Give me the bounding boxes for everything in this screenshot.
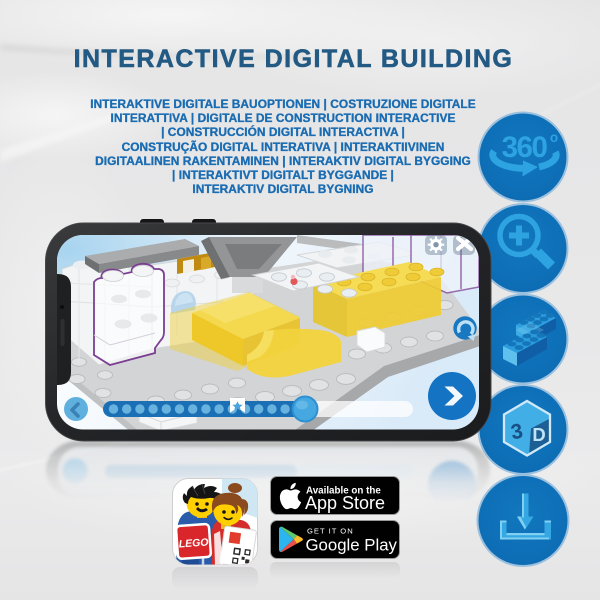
svg-text:App Store: App Store bbox=[305, 493, 385, 513]
svg-text:360: 360 bbox=[502, 131, 548, 164]
svg-text:o: o bbox=[550, 130, 558, 145]
svg-text:GET IT ON: GET IT ON bbox=[307, 527, 354, 536]
svg-text:LEGO: LEGO bbox=[178, 536, 209, 550]
svg-text:Google Play: Google Play bbox=[306, 536, 398, 555]
